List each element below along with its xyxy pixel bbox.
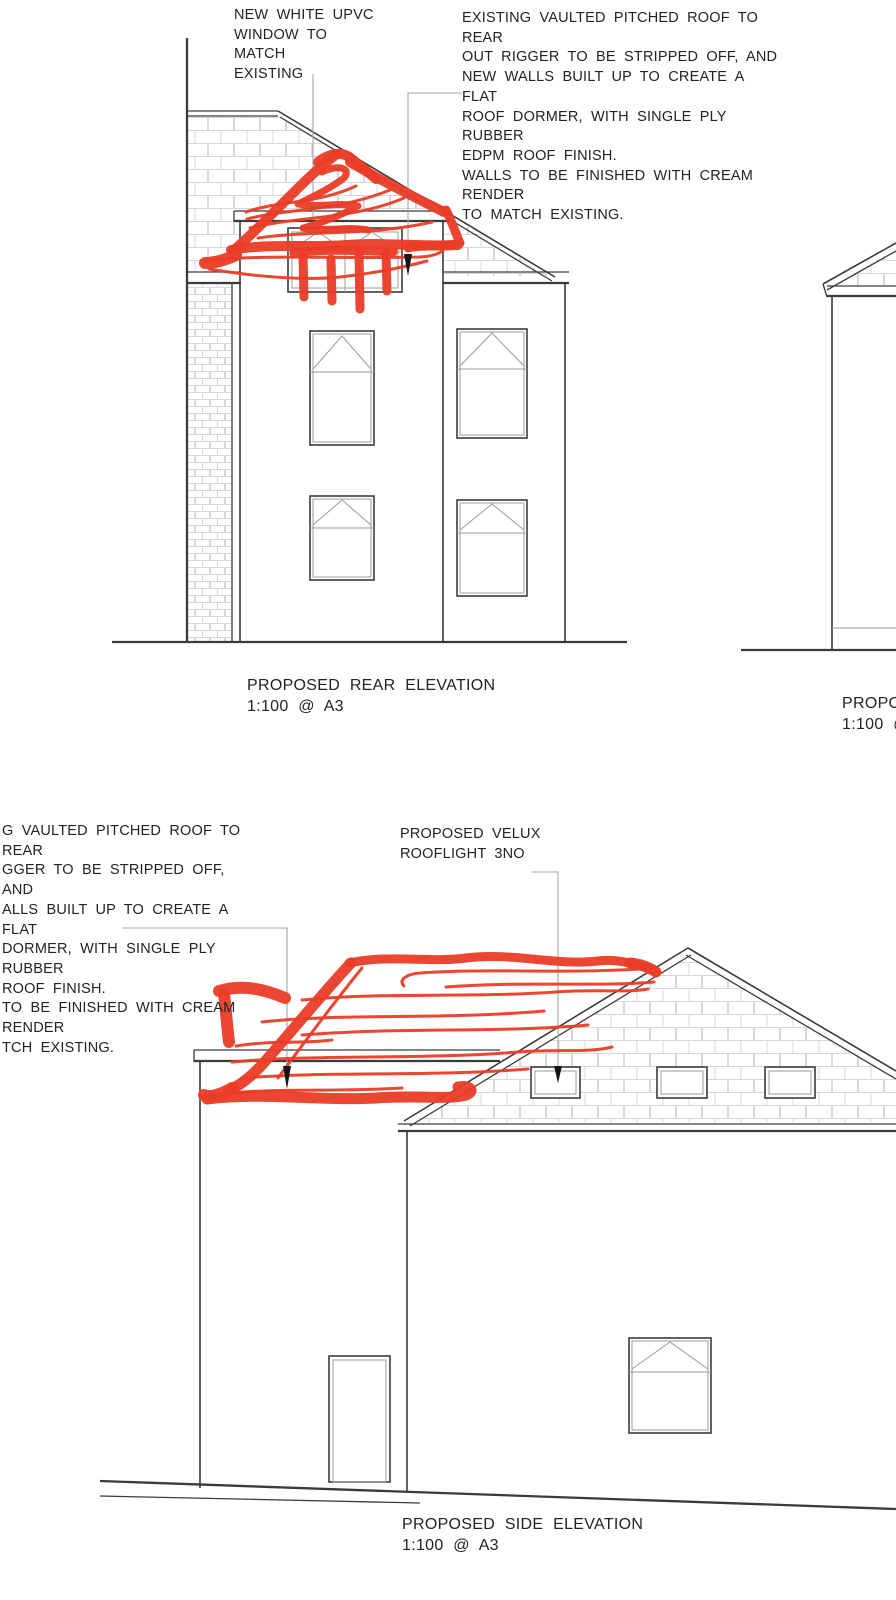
architectural-drawing-sheet: NEW WHITE UPVC WINDOW TO MATCH EXISTING … [0, 0, 896, 1600]
rear-elevation-title-name: PROPOSED REAR ELEVATION [247, 677, 495, 694]
rear-elevation-title-scale: 1:100 @ A3 [247, 698, 344, 715]
right-partial-title-scale: 1:100 @ [842, 716, 896, 733]
rear-window-note: NEW WHITE UPVC WINDOW TO MATCH EXISTING [234, 6, 384, 85]
rear-window-upper-left [310, 331, 374, 445]
side-window [629, 1338, 711, 1433]
rear-window-lower-left [310, 496, 374, 580]
elevation-drawing-svg [0, 0, 896, 1600]
velux-note-leader [532, 872, 558, 1066]
right-elevation-partial [741, 243, 896, 650]
side-roof-note: G VAULTED PITCHED ROOF TO REAR GGER TO B… [2, 822, 262, 1058]
side-elevation-title: PROPOSED SIDE ELEVATION1:100 @ A3 [402, 1514, 643, 1556]
velux-rooflight-note: PROPOSED VELUX ROOFLIGHT 3NO [400, 825, 560, 864]
velux-rooflight-2 [657, 1067, 707, 1098]
side-elevation-title-scale: 1:100 @ A3 [402, 1537, 499, 1554]
side-elevation-title-name: PROPOSED SIDE ELEVATION [402, 1516, 643, 1533]
side-door [329, 1356, 390, 1482]
rear-window-upper-right [457, 329, 527, 438]
right-partial-elevation-title: PROPOSE1:100 @ [842, 693, 896, 735]
rear-elevation-title: PROPOSED REAR ELEVATION1:100 @ A3 [247, 675, 495, 717]
rear-brick-strip [188, 284, 232, 641]
side-ground-line [100, 1481, 896, 1509]
rear-roof-note: EXISTING VAULTED PITCHED ROOF TO REAR OU… [462, 9, 782, 226]
velux-rooflight-3 [765, 1067, 815, 1098]
rear-window-lower-right [457, 500, 527, 596]
right-partial-title-name: PROPOSE [842, 695, 896, 712]
leader-arrow-icon [283, 1066, 291, 1089]
